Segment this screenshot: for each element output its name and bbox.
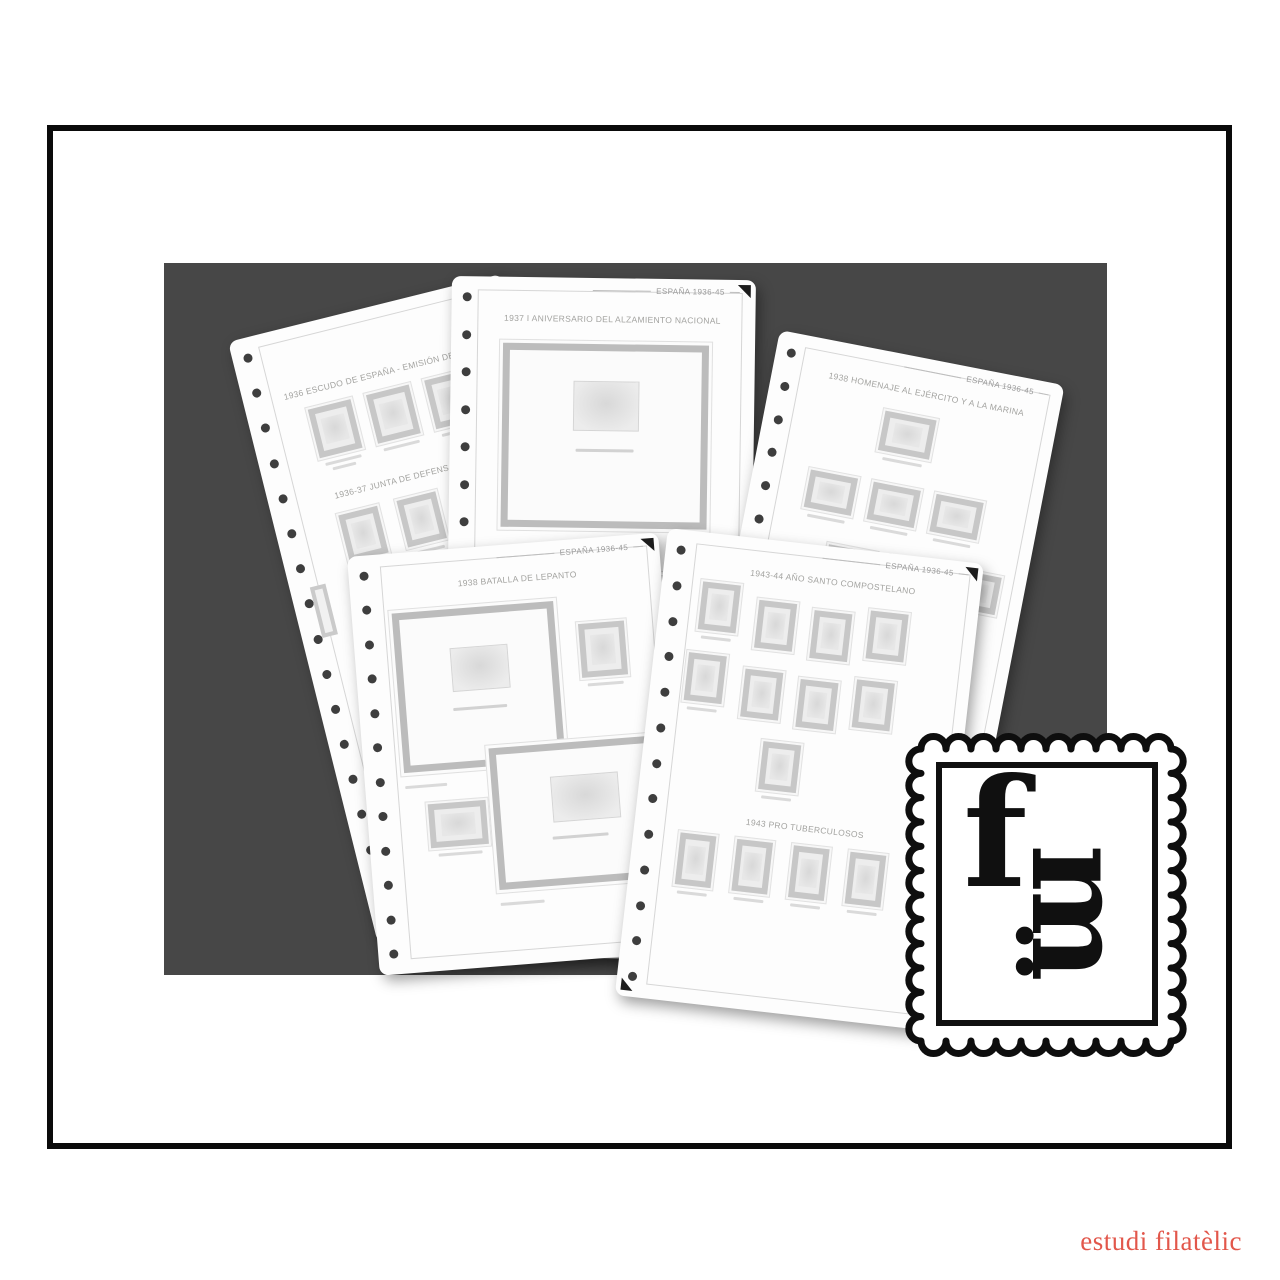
stamp-placeholder [694,578,745,643]
stamp-image [742,852,762,882]
stamp-placeholder [806,607,856,666]
stamp-placeholder [792,676,842,735]
stamp-placeholder [671,829,720,897]
stamp-image [351,519,377,548]
stamp-placeholder [680,649,731,714]
stamp-image [891,423,923,448]
binder-hole [779,381,790,392]
binder-hole [277,493,288,504]
header-rule [959,573,969,575]
stamp-image [685,845,705,875]
binder-hole [655,723,665,733]
stamp-image [695,665,716,692]
stamp-image [769,754,790,781]
binder-hole [367,674,377,684]
stamp-image [550,771,621,822]
stamp-image [863,692,884,719]
stamp-placeholder [862,478,925,537]
stamp-image [449,644,510,692]
binder-hole [330,704,341,715]
stamp-placeholder [754,738,805,803]
binder-hole [651,758,661,768]
binder-hole [631,936,641,946]
stamp-image [709,594,730,621]
binder-hole [321,669,332,680]
binder-hole [372,743,382,753]
binder-hole [766,447,777,458]
stamp-placeholder [575,617,632,687]
binder-hole [663,652,673,662]
header-rule [633,546,643,548]
stamp-image [379,398,408,429]
binder-hole [370,709,380,719]
stamp-placeholder [848,676,898,735]
caption-line [552,832,608,839]
binder-hole [242,353,253,364]
binder-hole [295,563,306,574]
stamp-placeholder [751,596,801,655]
binder-hole [338,739,349,750]
stamp-image [590,634,617,665]
binder-hole [286,528,297,539]
binder-hole [375,778,385,788]
binder-hole [760,480,771,491]
binder-hole [672,581,682,591]
page-header-label: ESPAÑA 1936-45 [656,287,725,297]
binder-hole [364,640,374,650]
brand-stamp-logo: f : m [905,733,1187,1057]
binder-hole [347,774,358,785]
product-image: 1936 ESCUDO DE ESPAÑA - EMISIÓN DE GRANA… [0,0,1280,1280]
binder-hole [380,846,390,856]
caption-line [576,449,634,453]
binder-hole [668,616,678,626]
souvenir-sheet-placeholder [496,339,713,534]
stamp-image [820,623,841,650]
binder-hole [635,900,645,910]
stamp-placeholder [727,836,776,904]
binder-hole [773,414,784,425]
binder-hole [462,330,471,339]
binder-hole [260,423,271,434]
binder-hole [786,348,797,359]
binder-hole [383,881,393,891]
caption-line [454,704,507,711]
stamp-placeholder [424,797,492,858]
binder-hole [460,442,469,451]
binder-hole [462,292,471,301]
stamp-image [441,812,476,837]
binder-hole [753,513,764,524]
binder-hole [356,809,367,820]
binder-hole [251,388,262,399]
stamp-image [409,505,435,534]
stamp-placeholder [841,848,890,916]
stamp-image [799,858,819,888]
stamp-image [855,865,875,895]
stamp-image [321,413,350,444]
binder-hole [378,812,388,822]
header-rule [1039,393,1049,396]
stamp-placeholder [799,466,862,525]
stamp-placeholder [873,407,940,469]
header-rule [593,290,651,292]
stamp-placeholder [925,490,988,549]
stamp-image [876,623,897,650]
binder-hole [639,865,649,875]
binder-hole [460,480,469,489]
stamp-image [816,481,845,504]
binder-hole [643,829,653,839]
binder-hole [647,794,657,804]
header-rule [497,553,555,559]
binder-hole [459,518,468,527]
binder-hole [268,458,279,469]
logo-letter-m: m [1028,832,1128,994]
stamp-image [765,612,786,639]
stamp-image [806,691,827,718]
binder-hole [659,687,669,697]
stamp-image [942,506,971,529]
stamp-image [573,381,640,432]
stamp-image [879,494,908,517]
stamp-placeholder [737,665,787,724]
binder-hole [388,949,398,959]
stamp-image [751,681,772,708]
binder-hole [386,915,396,925]
corner-fold-icon [620,978,633,991]
stamp-placeholder [784,842,833,910]
binder-hole [461,367,470,376]
binder-hole [361,606,371,616]
stamp-placeholder [862,607,912,666]
binder-hole [359,571,369,581]
header-rule [730,292,740,293]
binder-hole [676,545,686,555]
watermark-text: estudi filatèlic [1080,1226,1242,1257]
binder-hole [461,405,470,414]
